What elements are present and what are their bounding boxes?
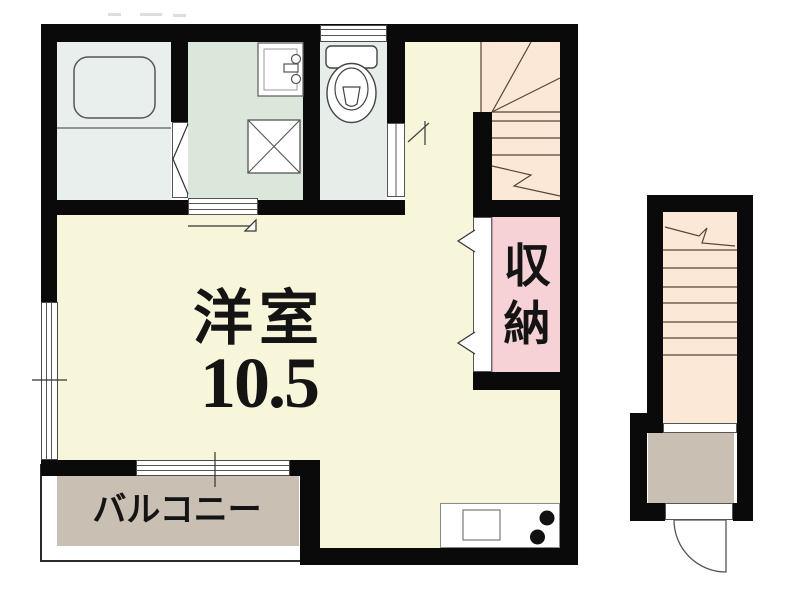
room-main-corridor-top xyxy=(405,42,481,112)
scan-mark xyxy=(140,13,162,16)
entrance-staircase xyxy=(663,212,737,423)
entrance-genkan xyxy=(648,433,734,503)
wall xyxy=(630,503,665,521)
left-window xyxy=(41,302,58,460)
scan-mark xyxy=(173,14,186,17)
wall xyxy=(473,112,492,200)
wall xyxy=(737,195,753,521)
wall xyxy=(473,200,578,217)
main-room-size-label: 10.5 xyxy=(188,350,330,416)
staircase-straight xyxy=(492,112,560,200)
scan-mark xyxy=(108,13,121,16)
staircase-winder xyxy=(481,42,560,112)
room-main-right xyxy=(473,390,560,460)
wall xyxy=(473,372,578,390)
storage-label: 収納 xyxy=(500,238,554,354)
bathroom-door xyxy=(172,122,188,198)
wall xyxy=(387,42,405,123)
wall xyxy=(733,503,753,521)
toilet-window xyxy=(320,25,387,42)
balcony-label: バルコニー xyxy=(85,492,269,530)
entrance-threshold xyxy=(665,503,733,520)
wall xyxy=(41,24,578,42)
room-bathroom xyxy=(57,42,171,200)
wall xyxy=(560,24,578,565)
storage-door xyxy=(473,217,492,372)
room-toilet xyxy=(320,42,387,200)
room-main-corridor xyxy=(405,112,473,215)
main-room-label: 洋室 xyxy=(188,288,330,350)
entrance-door-icon xyxy=(674,520,726,572)
stair-landing xyxy=(663,423,737,433)
toilet-door xyxy=(387,123,405,197)
balcony-window xyxy=(136,460,290,476)
wall xyxy=(647,195,663,425)
wall xyxy=(303,42,320,200)
floor-plan: 洋室 10.5 収納 バルコニー xyxy=(0,0,800,600)
wall xyxy=(300,460,320,565)
wall xyxy=(300,548,578,565)
kitchen-counter xyxy=(440,503,560,548)
room-washroom xyxy=(188,42,303,200)
wall xyxy=(171,42,188,122)
washroom-sliding-door xyxy=(188,198,258,215)
